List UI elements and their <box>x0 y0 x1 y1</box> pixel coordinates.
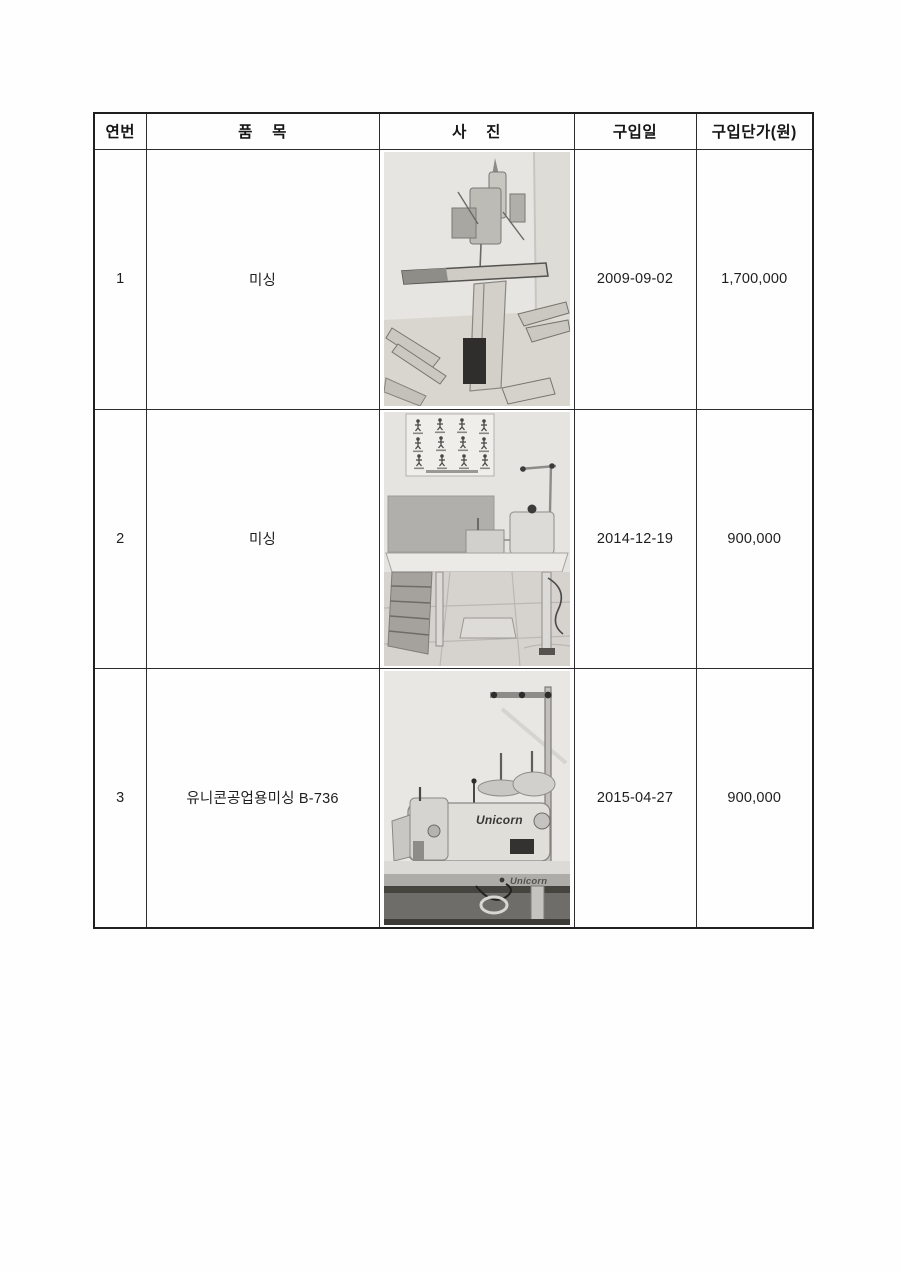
cell-purchase-date: 2009-09-02 <box>574 149 696 409</box>
photo-sewing-machine-on-stand <box>384 152 570 406</box>
photo-sewing-machine-on-table <box>384 412 570 666</box>
photo-table-brand-text: Unicorn <box>510 876 547 887</box>
cell-serial-no: 3 <box>94 668 146 928</box>
photo-brand-text: Unicorn <box>476 813 523 827</box>
cell-unit-price: 1,700,000 <box>696 149 813 409</box>
cell-serial-no: 1 <box>94 149 146 409</box>
equipment-inventory-table: 연번 품 목 사 진 구입일 구입단가(원) 1 미싱 <box>93 112 814 929</box>
photo-unicorn-sewing-machine-closeup: Unicorn Unicorn <box>384 671 570 925</box>
scanned-document-page: 연번 품 목 사 진 구입일 구입단가(원) 1 미싱 <box>0 0 900 1272</box>
cell-item-name: 미싱 <box>146 149 379 409</box>
cell-purchase-date: 2014-12-19 <box>574 409 696 668</box>
col-header-photo: 사 진 <box>379 113 574 149</box>
col-header-unit-price: 구입단가(원) <box>696 113 813 149</box>
cell-photo <box>379 149 574 409</box>
cell-purchase-date: 2015-04-27 <box>574 668 696 928</box>
cell-item-name: 미싱 <box>146 409 379 668</box>
cell-unit-price: 900,000 <box>696 668 813 928</box>
cell-photo <box>379 409 574 668</box>
table-row: 3 유니콘공업용미싱 B-736 <box>94 668 813 928</box>
table-header-row: 연번 품 목 사 진 구입일 구입단가(원) <box>94 113 813 149</box>
col-header-purchase-date: 구입일 <box>574 113 696 149</box>
col-header-serial-no: 연번 <box>94 113 146 149</box>
cell-item-name: 유니콘공업용미싱 B-736 <box>146 668 379 928</box>
col-header-item: 품 목 <box>146 113 379 149</box>
cell-serial-no: 2 <box>94 409 146 668</box>
table-row: 2 미싱 <box>94 409 813 668</box>
table-row: 1 미싱 <box>94 149 813 409</box>
cell-unit-price: 900,000 <box>696 409 813 668</box>
cell-photo: Unicorn Unicorn <box>379 668 574 928</box>
